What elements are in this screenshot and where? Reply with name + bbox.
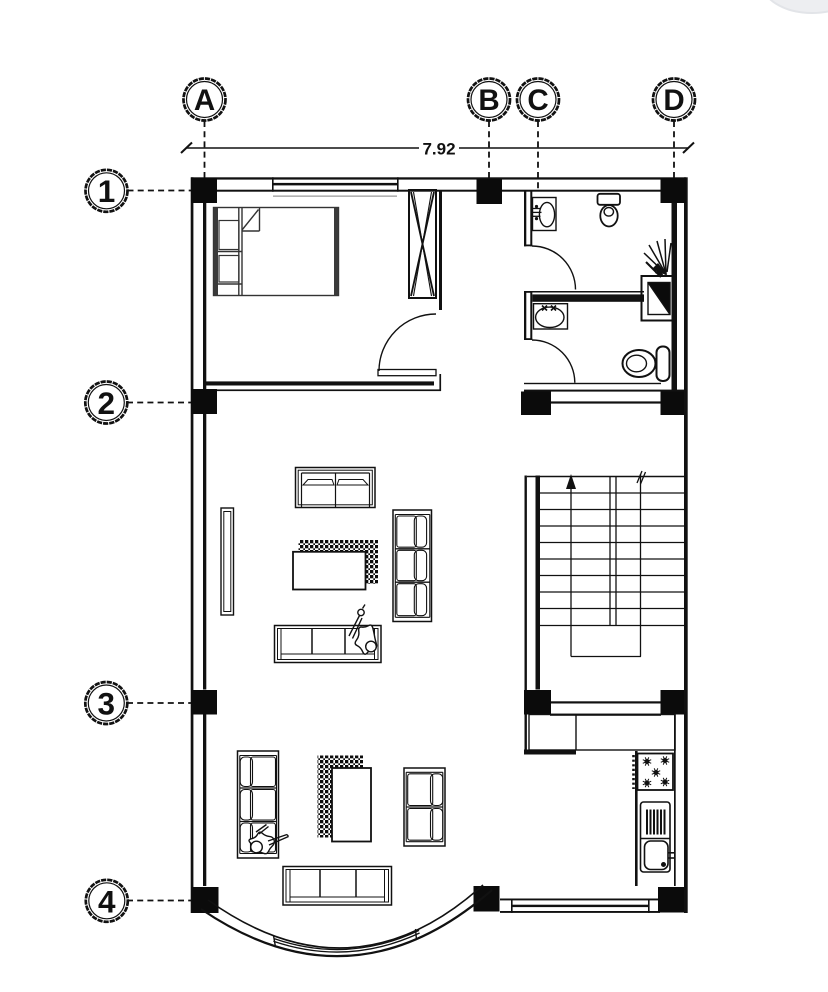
svg-text:7.92: 7.92 <box>422 140 455 159</box>
svg-text:D: D <box>663 84 684 117</box>
svg-text:3: 3 <box>98 686 116 722</box>
svg-text:1: 1 <box>98 173 116 209</box>
svg-text:B: B <box>478 84 499 117</box>
svg-text:C: C <box>527 84 548 117</box>
svg-text:4: 4 <box>98 883 116 919</box>
svg-text:A: A <box>194 84 215 117</box>
svg-text:2: 2 <box>98 385 116 421</box>
